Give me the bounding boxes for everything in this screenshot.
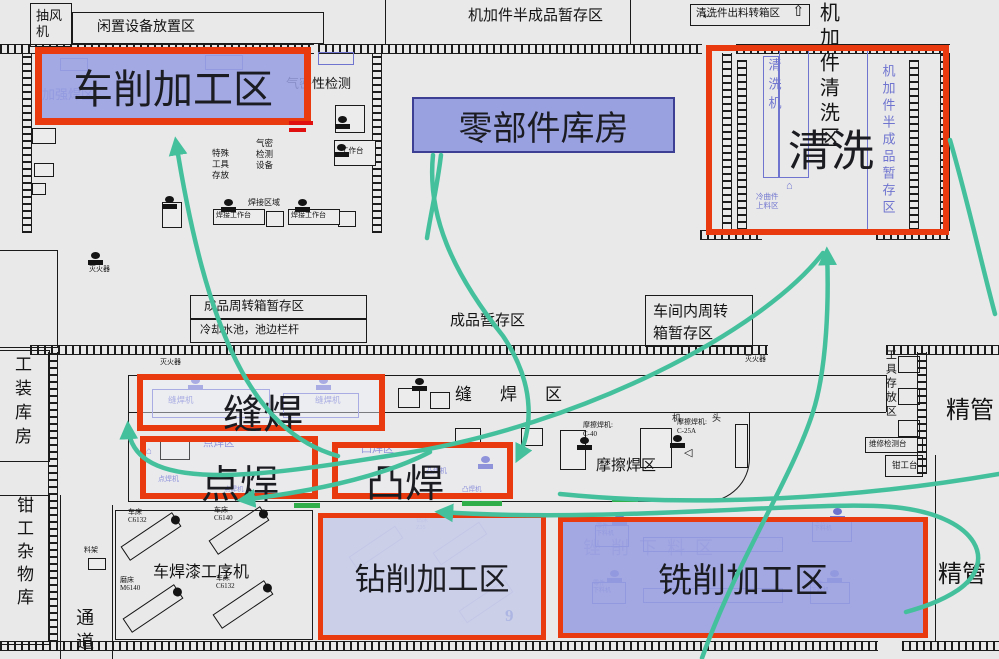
map-label: 灭火器: [745, 356, 766, 364]
wall-segment: [0, 641, 878, 651]
map-label: 维修检测台: [869, 440, 907, 448]
flow-arrow: [427, 155, 441, 238]
region-label: 点焊: [201, 454, 279, 510]
map-label: 车床 C6132: [128, 508, 147, 524]
pump-icon: [670, 435, 685, 448]
equipment-box: [398, 388, 420, 408]
pump-icon: [162, 196, 177, 209]
equipment-box: [266, 211, 284, 227]
map-label: 工装库房: [12, 355, 31, 451]
equipment-box: [735, 424, 748, 468]
cad-line: [385, 0, 386, 44]
wall-segment: [22, 53, 32, 233]
annotation-mark: [289, 121, 313, 125]
cad-line: [60, 495, 61, 659]
map-label: 摩擦焊区: [596, 458, 656, 475]
annotation-mark: [294, 503, 320, 508]
region-chexiao: 车削加工区: [35, 47, 311, 125]
region-label: 凸焊: [366, 453, 444, 509]
map-label: 车床 C6132: [216, 574, 235, 590]
region-label: 零部件库房: [459, 101, 629, 150]
cad-line: [935, 455, 936, 641]
equipment-box: [88, 558, 106, 570]
room-outline: [0, 250, 58, 348]
map-label: 焊接工作台: [216, 212, 251, 220]
map-label: 抽风 机: [36, 8, 62, 40]
equipment-box: [32, 128, 56, 144]
region-xixiao: 铣削加工区: [558, 517, 928, 638]
factory-layout-diagram: 抽风 机闲置设备放置区机加件半成品暂存区←清洗件出料转箱区⇧机加件清洗区气密性检…: [0, 0, 999, 659]
map-label: 工具存放区: [884, 349, 896, 419]
map-label: 摩擦焊机: C-25A: [677, 418, 707, 436]
map-label: 头: [712, 413, 721, 423]
equipment-box: [32, 183, 46, 195]
map-label: 磨床 M6140: [120, 576, 140, 592]
wall-segment: [886, 345, 999, 355]
room-outline: [898, 388, 920, 405]
map-label: 缝焊区: [455, 385, 590, 404]
region-zuanxiao: 钻削加工区: [318, 513, 546, 640]
map-label: 焊接区域: [248, 199, 280, 208]
map-label: 工作台: [341, 147, 364, 155]
cad-line: [112, 505, 113, 659]
room-outline: [898, 420, 920, 437]
region-fenghan: 缝焊: [137, 374, 385, 431]
flow-arrow: [950, 140, 995, 314]
equipment-box: [338, 211, 356, 227]
map-label: 冷却水池，池边栏杆: [200, 324, 299, 336]
machine-outline: [318, 52, 354, 65]
map-label: 清洗件出料转箱区: [696, 8, 780, 20]
map-label: 灭火器: [89, 266, 110, 274]
map-label: 闲置设备放置区: [97, 20, 195, 36]
region-dianhan: 点焊: [140, 436, 318, 499]
annotation-mark: [612, 497, 638, 502]
map-label: 摩擦焊机: C-40: [583, 421, 613, 439]
equipment-box: [34, 163, 54, 177]
equipment-box: [521, 428, 543, 446]
map-label: 通道: [74, 608, 94, 656]
region-label: 缝焊: [223, 382, 303, 440]
map-label: 料架: [84, 547, 98, 555]
region-label: 钻削加工区: [355, 554, 510, 599]
map-label: ⇧: [792, 4, 805, 21]
map-label: 钳工杂物库: [14, 496, 33, 611]
map-label: 成品暂存区: [450, 313, 525, 330]
pump-icon: [335, 116, 350, 129]
region-label: 铣削加工区: [658, 553, 828, 602]
map-label: 机加件半成品暂存区: [468, 8, 603, 25]
map-label: 车间内周转 箱暂存区: [653, 301, 728, 345]
region-label: 车削加工区: [73, 57, 273, 115]
annotation-mark: [462, 501, 502, 506]
cad-line: [630, 0, 631, 44]
region-label: 清洗: [788, 117, 874, 179]
pump-icon: [88, 252, 103, 265]
map-label: 成品周转箱暂存区: [204, 299, 304, 313]
map-label: 灭火器: [160, 359, 181, 367]
region-qingxi: 清洗: [706, 45, 949, 235]
map-label: 机: [672, 413, 681, 423]
annotation-mark: [289, 128, 306, 132]
region-tuhan: 凸焊: [332, 442, 513, 499]
map-label: 气密 检测 设备: [256, 138, 273, 171]
map-label: 钳工台: [892, 461, 918, 471]
map-label: 特殊 工具 存放: [212, 148, 229, 181]
map-label: 精管: [946, 398, 994, 425]
cad-line: [128, 375, 129, 412]
equipment-box: [430, 392, 450, 409]
wall-segment: [902, 641, 999, 651]
map-label: 焊接工作台: [291, 212, 326, 220]
region-lingbujian: 零部件库房: [412, 97, 675, 153]
room-outline: [898, 356, 920, 373]
map-label: 精管: [938, 562, 986, 589]
pump-icon: [412, 378, 427, 391]
map-label: ◁: [684, 447, 692, 459]
